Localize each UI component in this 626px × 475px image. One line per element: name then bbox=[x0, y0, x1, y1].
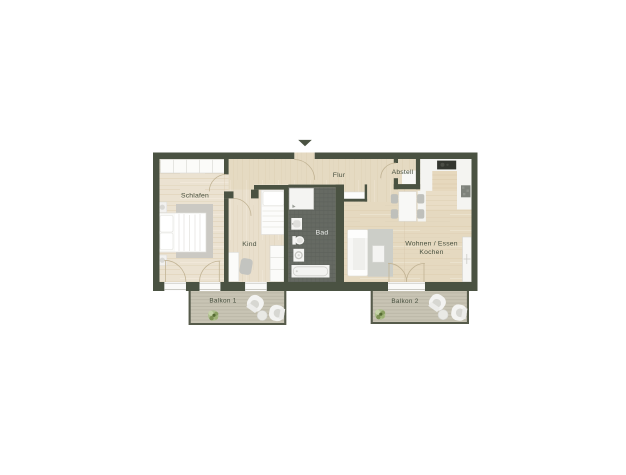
svg-text:Balkon 2: Balkon 2 bbox=[391, 298, 418, 305]
svg-text:Kochen: Kochen bbox=[419, 249, 443, 256]
svg-text:Kind: Kind bbox=[242, 241, 256, 248]
svg-text:Abstell: Abstell bbox=[392, 169, 414, 176]
svg-text:Wohnen / Essen: Wohnen / Essen bbox=[405, 240, 458, 247]
svg-text:Schlafen: Schlafen bbox=[181, 193, 209, 200]
svg-text:Bad: Bad bbox=[316, 230, 329, 237]
svg-text:Balkon 1: Balkon 1 bbox=[209, 298, 236, 305]
svg-text:Flur: Flur bbox=[333, 172, 346, 179]
